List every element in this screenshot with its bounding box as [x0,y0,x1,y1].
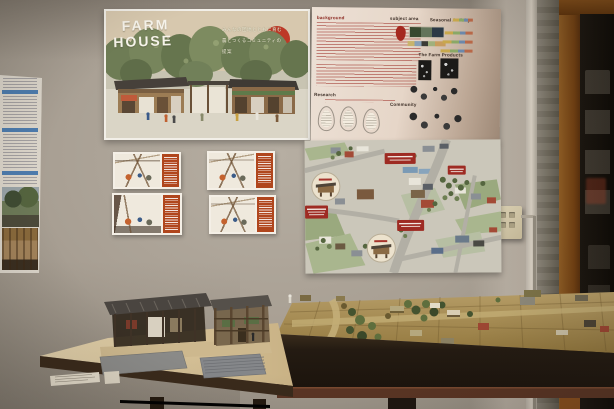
poster-text-lines [3,177,37,185]
diorama-road [322,300,337,350]
caption-panel [257,197,274,232]
poster-rendering-exterior [2,187,39,227]
poster-rendering-facade [2,228,38,270]
poster-section-bar [2,128,38,132]
detail-card [207,151,275,190]
site-map-poster [305,139,502,273]
poster-text-lines [3,96,37,124]
heading-subject-area: subject area [390,16,419,21]
detail-card [112,193,182,235]
poster-title-line1: FARM [121,16,169,34]
interior-sketch [211,197,255,232]
heading-community: Community [390,102,417,107]
concrete-pillar [537,0,560,409]
farmhouse-poster: FARM HOUSE みんなの団地とともに育む 農とつくるコミュニティの 提案 [104,9,310,140]
body-text-lines [316,22,420,61]
poster-text-lines [3,78,37,88]
switch-button [509,212,515,218]
heading-background: background [317,15,345,20]
site-map-illustration [305,139,502,273]
legend-line [325,99,395,103]
detail-card [113,152,181,189]
poster-section-bar [2,90,38,94]
poster-title: FARM HOUSE [121,16,173,50]
model-figure [252,333,255,341]
glass-reflection [588,245,610,355]
side-poster [0,75,42,273]
exhibition-photo: FARM HOUSE みんなの団地とともに育む 農とつくるコミュニティの 提案 … [0,0,614,409]
switch-button [509,222,515,228]
product-photo [440,58,458,78]
heading-farm-products: The Farm Products [418,52,462,57]
interior-sketch [114,195,161,233]
wood-door-lintel [559,0,614,15]
product-photo [418,60,431,80]
wall-shadow-bottom [0,260,240,409]
interior-sketch [209,153,254,188]
right-building [228,79,299,114]
left-building [114,77,189,113]
poster-section-bar [2,171,38,175]
diorama-table-leg [388,398,416,409]
caption-panel [162,154,179,187]
heading-research: Research [314,92,336,97]
poster-title-line2: HOUSE [113,32,173,50]
subtitle-line: 農とつくるコミュニティの [222,36,304,47]
caption-panel [256,153,273,188]
wood-door-frame [559,0,582,409]
photo-thumbnails [408,41,446,46]
research-leaf-diagram [318,106,335,131]
poster-subtitle: みんなの団地とともに育む 農とつくるコミュニティの 提案 [222,25,304,57]
table-leg [253,399,266,409]
subtitle-line: 提案 [222,47,304,58]
detail-card [209,195,276,234]
interior-sketch [115,154,160,187]
info-poster: background Research subject area Seasona… [311,7,501,143]
research-leaf-diagram [363,109,380,134]
season-timeline-bar [445,31,473,34]
community-diagram [406,108,468,137]
research-leaf-diagram [340,106,357,131]
poster-text-lines [3,134,37,168]
subtitle-line: みんなの団地とともに育む [222,25,304,36]
caption-panel [163,195,180,233]
season-timeline-bar [443,40,473,43]
body-text-lines [316,64,416,87]
reflected-sign [586,178,606,204]
season-timeline-bar [453,18,473,21]
diorama-figurine [288,294,291,303]
site-photo-strip [409,26,445,38]
electrical-conduit [533,216,536,409]
